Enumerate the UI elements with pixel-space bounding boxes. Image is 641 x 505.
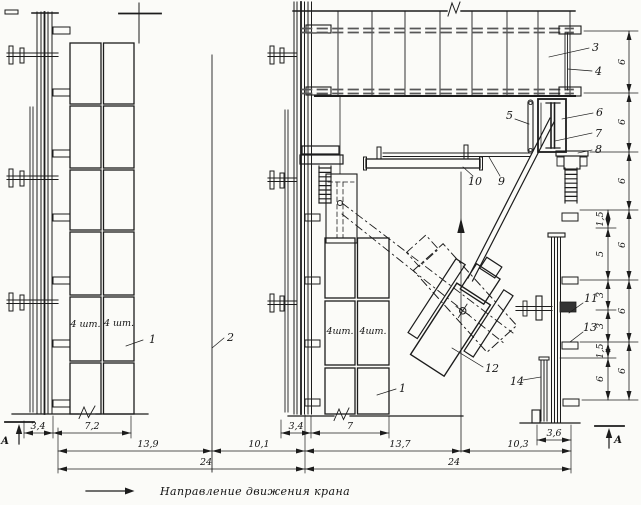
break-symbol-left bbox=[79, 406, 95, 419]
callout-2: 2 bbox=[226, 331, 234, 344]
ground-line-left bbox=[12, 406, 148, 419]
dim-right-3-4: 3,4 bbox=[288, 421, 303, 432]
dim-inner-5: 5 bbox=[595, 251, 606, 257]
callout-8: 8 bbox=[595, 143, 602, 156]
panel-count-left-1: 4 шт. bbox=[69, 319, 100, 330]
wall-anchors-right bbox=[268, 46, 296, 312]
callout-5: 5 bbox=[506, 109, 513, 122]
dim-right-24: 24 bbox=[447, 457, 460, 468]
panel-stack-left: 4 шт. 4 шт. bbox=[69, 43, 134, 414]
callout-6: 6 bbox=[596, 106, 603, 119]
mast-brackets-right bbox=[300, 25, 343, 406]
dim-left-7-2: 7,2 bbox=[84, 421, 99, 432]
section-letter-right: А bbox=[613, 435, 622, 446]
callout-4: 4 bbox=[594, 65, 602, 78]
panel-count-right-2: 4шт. bbox=[358, 326, 386, 337]
tower-mast-left bbox=[5, 10, 58, 414]
tower-mast-right bbox=[285, 2, 312, 414]
callout-7: 7 bbox=[595, 127, 602, 140]
dim-outer-6-1: 6 bbox=[617, 59, 628, 65]
erection-column bbox=[516, 26, 581, 423]
caption: Направление движения крана bbox=[86, 485, 350, 498]
top-scaffold bbox=[293, 2, 575, 96]
support-assembly bbox=[556, 151, 588, 169]
mast-brackets-left bbox=[53, 27, 70, 407]
right-view: 4шт. 4шт. bbox=[268, 2, 588, 452]
mast-top-tee bbox=[119, 3, 161, 43]
dim-right-13-7: 13,7 bbox=[389, 439, 411, 450]
dim-middle-10-1: 10,1 bbox=[248, 439, 269, 450]
dim-left-24: 24 bbox=[199, 457, 212, 468]
dim-outer-6-2: 6 bbox=[617, 119, 628, 125]
crane-hoist-axis bbox=[457, 172, 464, 452]
dimension-lines: 3,4 7,2 3,4 7 3,6 13,9 10,1 13,7 10,3 24… bbox=[24, 31, 638, 473]
column-extension-piece bbox=[532, 357, 549, 423]
section-marker-right: А bbox=[595, 426, 624, 448]
monorail bbox=[364, 145, 531, 170]
crane-unit-ghost bbox=[401, 230, 516, 352]
dim-outer-6-5: 6 bbox=[617, 308, 628, 314]
dim-inner-3b: 3 bbox=[595, 323, 606, 329]
break-symbol-top bbox=[448, 2, 460, 16]
section-letter-left: А bbox=[0, 436, 9, 447]
callout-1-right: 1 bbox=[399, 382, 406, 395]
dim-inner-1-5a: 1,5 bbox=[595, 211, 606, 226]
dim-outer-6-4: 6 bbox=[617, 242, 628, 248]
dim-inner-3a: 3 bbox=[595, 292, 606, 298]
dim-outer-6-3: 6 bbox=[617, 178, 628, 184]
dim-inner-6: 6 bbox=[595, 376, 606, 382]
callout-14: 14 bbox=[510, 375, 524, 388]
wall-anchors-left bbox=[7, 46, 58, 311]
panel-count-left-2: 4 шт. bbox=[103, 318, 134, 329]
panel-count-right-1: 4шт. bbox=[325, 326, 353, 337]
callout-9: 9 bbox=[498, 175, 505, 188]
dim-left-13-9: 13,9 bbox=[137, 439, 158, 450]
anchor-pin-assembly bbox=[516, 296, 576, 320]
dim-right-7: 7 bbox=[347, 421, 354, 432]
dim-outer-6-6: 6 bbox=[617, 368, 628, 374]
technical-drawing-canvas: 4 шт. 4 шт. bbox=[0, 0, 641, 505]
dim-column-3-6: 3,6 bbox=[546, 428, 561, 439]
edge-ladder bbox=[565, 168, 577, 203]
mounting-frame bbox=[528, 99, 566, 153]
dim-right-10-3: 10,3 bbox=[507, 439, 528, 450]
callout-10: 10 bbox=[468, 175, 482, 188]
crane-installation-scheme: 4 шт. 4 шт. bbox=[0, 0, 641, 505]
dim-inner-1-5b: 1,5 bbox=[595, 343, 606, 358]
callout-1-left: 1 bbox=[149, 333, 156, 346]
guide-bar bbox=[528, 100, 533, 153]
mast-ladder bbox=[319, 166, 331, 203]
crane-jib bbox=[468, 118, 555, 281]
callout-3: 3 bbox=[592, 41, 599, 54]
panel-stack-right: 4шт. 4шт. bbox=[325, 238, 389, 414]
left-view: 4 шт. 4 шт. bbox=[5, 3, 161, 419]
caption-text: Направление движения крана bbox=[159, 485, 350, 498]
section-marker-left: А bbox=[0, 422, 34, 447]
callout-12: 12 bbox=[485, 362, 499, 375]
